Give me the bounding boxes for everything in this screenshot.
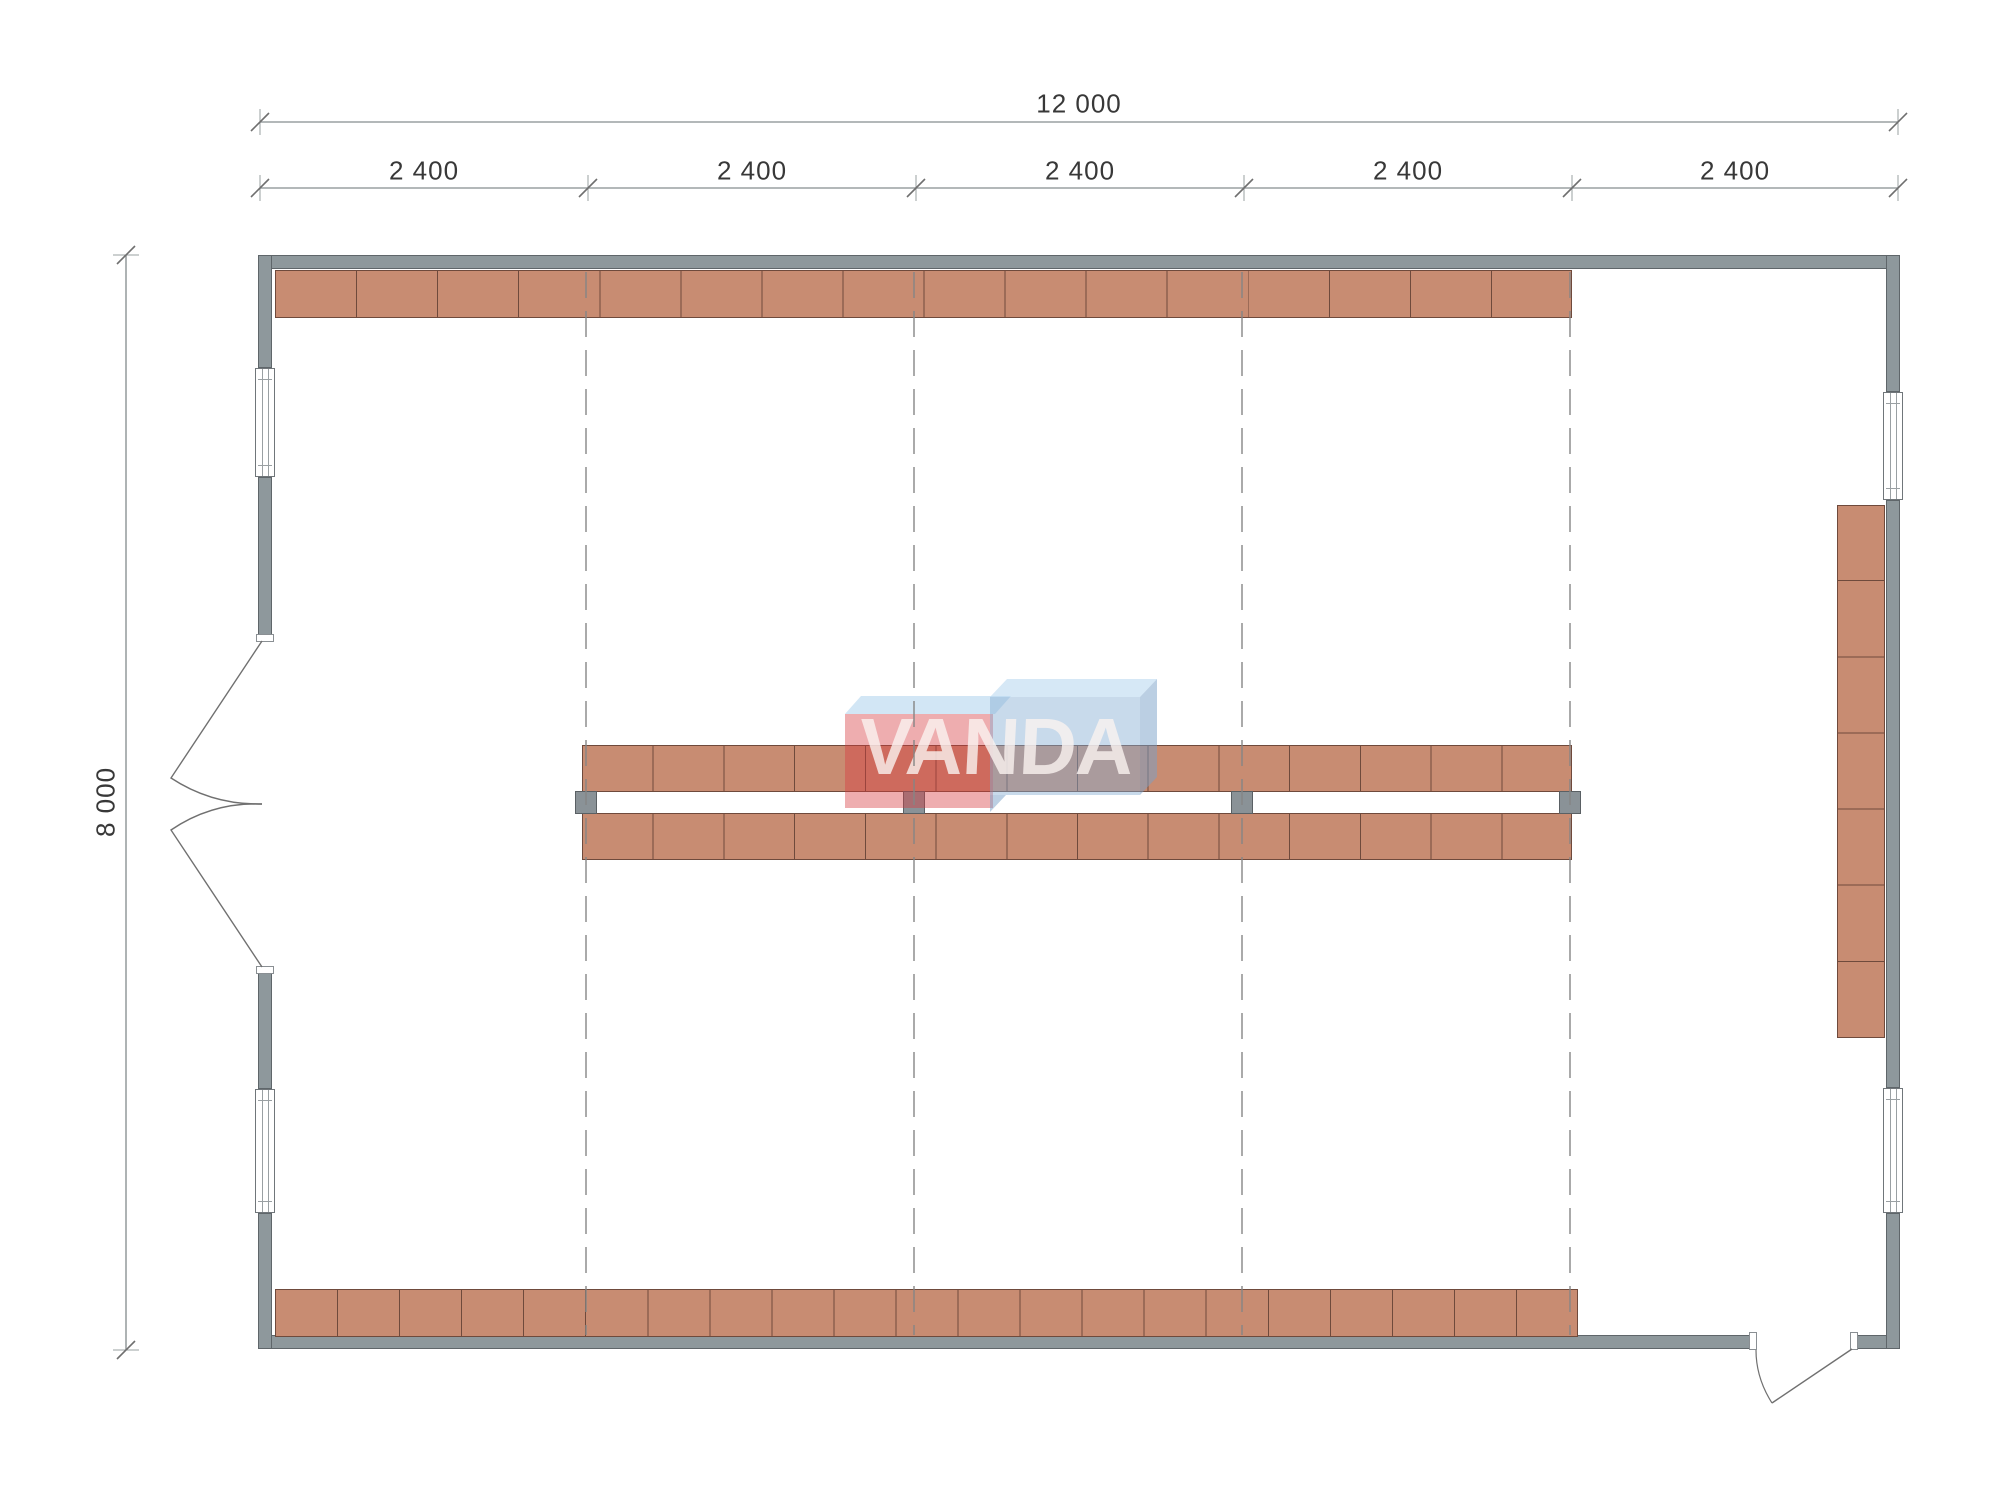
- shelf-run: [1837, 505, 1885, 1038]
- wall-segment: [258, 1335, 1750, 1349]
- door-jamb: [1749, 1332, 1757, 1350]
- window-frame-line: [262, 1090, 263, 1212]
- window-sill-tick: [258, 1201, 272, 1202]
- window-frame-line: [268, 369, 269, 476]
- window-frame-line: [1890, 393, 1891, 499]
- window-frame-line: [262, 369, 263, 476]
- window-frame-line: [1890, 1089, 1891, 1212]
- window-sill-tick: [1886, 1201, 1900, 1202]
- dimension-label-bay-2: 2 400: [717, 156, 787, 187]
- window: [1883, 1088, 1903, 1213]
- wall-segment: [258, 973, 272, 1089]
- floor-plan-canvas: VANDA 12 000 2 400 2 400 2 400 2 400 2 4…: [0, 0, 2000, 1488]
- window: [1883, 392, 1903, 500]
- shelf-run: [275, 1289, 1578, 1337]
- door-jamb: [256, 634, 274, 642]
- column-post: [1559, 791, 1581, 814]
- window-frame-line: [1896, 393, 1897, 499]
- dimension-label-bay-4: 2 400: [1373, 156, 1443, 187]
- window-sill-tick: [1886, 403, 1900, 404]
- shelf-run: [275, 270, 1572, 318]
- dimension-label-bay-5: 2 400: [1700, 156, 1770, 187]
- dimension-label-overall-height: 8 000: [91, 767, 122, 837]
- column-post: [575, 791, 597, 814]
- window: [255, 1089, 275, 1213]
- window-frame-line: [268, 1090, 269, 1212]
- wall-segment: [258, 1213, 272, 1349]
- shelf-run: [582, 813, 1572, 860]
- column-post: [1231, 791, 1253, 814]
- vanda-watermark-logo: VANDA: [845, 677, 1157, 817]
- wall-segment: [258, 255, 272, 368]
- window-sill-tick: [1886, 1099, 1900, 1100]
- door-jamb: [1850, 1332, 1858, 1350]
- window-sill-tick: [258, 465, 272, 466]
- wall-segment: [1886, 255, 1900, 392]
- window-sill-tick: [258, 379, 272, 380]
- window-sill-tick: [258, 1100, 272, 1101]
- wall-segment: [258, 255, 1900, 269]
- dimension-label-bay-1: 2 400: [389, 156, 459, 187]
- wall-segment: [1886, 1213, 1900, 1349]
- wall-segment: [258, 477, 272, 635]
- window-frame-line: [1896, 1089, 1897, 1212]
- door-jamb: [256, 966, 274, 974]
- dimension-label-bay-3: 2 400: [1045, 156, 1115, 187]
- window-sill-tick: [1886, 488, 1900, 489]
- dimension-label-overall-width: 12 000: [1036, 89, 1122, 120]
- watermark-brand-text: VANDA: [843, 707, 1149, 787]
- window: [255, 368, 275, 477]
- wall-segment: [1886, 500, 1900, 1088]
